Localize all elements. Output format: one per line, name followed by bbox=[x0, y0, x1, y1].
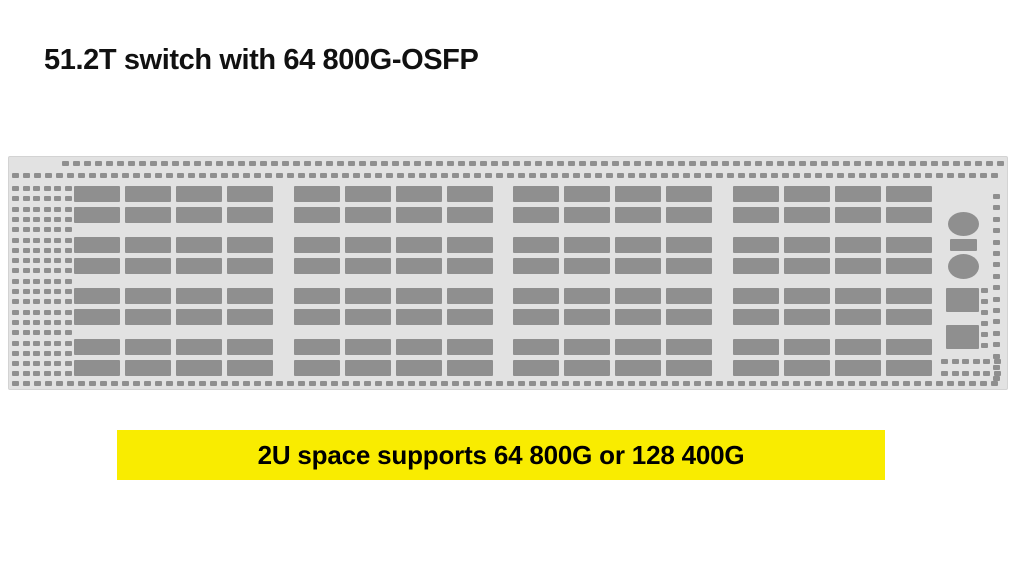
vent-hole bbox=[44, 268, 51, 273]
vent-hole bbox=[172, 161, 179, 166]
vent-hole bbox=[540, 173, 547, 178]
vent-hole bbox=[903, 381, 910, 386]
vent-hole bbox=[837, 173, 844, 178]
vent-hole bbox=[496, 381, 503, 386]
vent-hole bbox=[65, 186, 72, 191]
osfp-port-cage bbox=[294, 339, 340, 355]
vent-hole bbox=[44, 186, 51, 191]
vent-hole bbox=[601, 161, 608, 166]
vent-hole bbox=[33, 258, 40, 263]
vent-hole bbox=[33, 196, 40, 201]
vent-hole bbox=[771, 173, 778, 178]
vent-hole bbox=[381, 161, 388, 166]
vent-hole bbox=[485, 381, 492, 386]
vent-hole bbox=[12, 351, 19, 356]
vent-hole bbox=[463, 381, 470, 386]
vent-hole bbox=[579, 161, 586, 166]
vent-hole bbox=[870, 381, 877, 386]
vent-hole bbox=[507, 381, 514, 386]
vent-hole bbox=[23, 217, 30, 222]
vent-hole bbox=[716, 173, 723, 178]
vent-hole bbox=[265, 173, 272, 178]
callout-banner: 2U space supports 64 800G or 128 400G bbox=[117, 430, 885, 480]
osfp-port-cage bbox=[294, 237, 340, 253]
vent-hole bbox=[155, 381, 162, 386]
osfp-port-cage bbox=[396, 288, 442, 304]
vent-hole bbox=[348, 161, 355, 166]
vent-hole bbox=[12, 268, 19, 273]
vent-hole bbox=[183, 161, 190, 166]
vent-hole bbox=[993, 251, 1000, 256]
osfp-port-cage bbox=[615, 186, 661, 202]
vent-hole bbox=[111, 381, 118, 386]
osfp-port-cage bbox=[396, 360, 442, 376]
osfp-port-cage bbox=[294, 288, 340, 304]
vent-hole bbox=[353, 173, 360, 178]
osfp-port-cage bbox=[835, 186, 881, 202]
vent-hole bbox=[573, 381, 580, 386]
vent-hole bbox=[848, 381, 855, 386]
vent-hole bbox=[84, 161, 91, 166]
osfp-port-cage bbox=[74, 309, 120, 325]
vent-hole bbox=[859, 381, 866, 386]
vent-hole bbox=[65, 289, 72, 294]
osfp-port-cage bbox=[784, 339, 830, 355]
vent-hole bbox=[54, 320, 61, 325]
vent-hole bbox=[993, 342, 1000, 347]
vent-hole bbox=[993, 331, 1000, 336]
vent-hole bbox=[848, 173, 855, 178]
vent-hole bbox=[320, 173, 327, 178]
vent-hole bbox=[403, 161, 410, 166]
osfp-port-cage bbox=[447, 339, 493, 355]
vent-hole bbox=[815, 173, 822, 178]
vent-hole bbox=[986, 161, 993, 166]
mgmt-port-lower bbox=[946, 325, 979, 349]
vent-hole bbox=[529, 381, 536, 386]
osfp-port-cage bbox=[615, 309, 661, 325]
vent-hole bbox=[12, 173, 19, 178]
osfp-port-cage bbox=[886, 360, 932, 376]
osfp-port-cage bbox=[564, 237, 610, 253]
vent-hole bbox=[993, 240, 1000, 245]
vent-hole bbox=[711, 161, 718, 166]
vent-hole bbox=[122, 381, 129, 386]
vent-hole bbox=[936, 173, 943, 178]
osfp-port-cage bbox=[176, 237, 222, 253]
vent-hole bbox=[33, 320, 40, 325]
vent-hole bbox=[925, 173, 932, 178]
vent-hole bbox=[89, 381, 96, 386]
vent-hole bbox=[65, 341, 72, 346]
osfp-port-cage bbox=[835, 309, 881, 325]
vent-hole bbox=[12, 341, 19, 346]
osfp-port-cage bbox=[733, 186, 779, 202]
page-title: 51.2T switch with 64 800G-OSFP bbox=[44, 44, 478, 77]
vent-hole bbox=[964, 161, 971, 166]
vent-hole bbox=[12, 330, 19, 335]
vent-hole bbox=[650, 381, 657, 386]
vent-hole bbox=[993, 285, 1000, 290]
vent-hole bbox=[65, 320, 72, 325]
vent-hole bbox=[973, 359, 980, 364]
osfp-port-cage bbox=[74, 186, 120, 202]
osfp-port-cage bbox=[513, 288, 559, 304]
vent-hole bbox=[843, 161, 850, 166]
vent-hole bbox=[166, 381, 173, 386]
vent-hole bbox=[782, 173, 789, 178]
vent-hole bbox=[12, 238, 19, 243]
vent-hole bbox=[634, 161, 641, 166]
vent-hole bbox=[993, 194, 1000, 199]
osfp-port-cage bbox=[615, 339, 661, 355]
vent-hole bbox=[33, 238, 40, 243]
vent-hole bbox=[12, 289, 19, 294]
osfp-port-cage bbox=[835, 339, 881, 355]
vent-hole bbox=[952, 359, 959, 364]
vent-hole bbox=[33, 371, 40, 376]
vent-hole bbox=[150, 161, 157, 166]
vent-hole bbox=[782, 381, 789, 386]
vent-hole bbox=[144, 381, 151, 386]
vent-hole bbox=[106, 161, 113, 166]
vent-hole bbox=[78, 173, 85, 178]
osfp-port-cage bbox=[125, 207, 171, 223]
osfp-port-cage bbox=[615, 207, 661, 223]
vent-hole bbox=[194, 161, 201, 166]
vent-hole bbox=[12, 381, 19, 386]
vent-hole bbox=[33, 341, 40, 346]
osfp-port-cage bbox=[125, 288, 171, 304]
vent-hole bbox=[993, 217, 1000, 222]
vent-hole bbox=[232, 173, 239, 178]
vent-hole bbox=[370, 161, 377, 166]
vent-hole bbox=[54, 217, 61, 222]
vent-hole bbox=[23, 330, 30, 335]
osfp-port-cage bbox=[733, 288, 779, 304]
vent-hole bbox=[981, 321, 988, 326]
vent-hole bbox=[755, 161, 762, 166]
vent-hole bbox=[44, 227, 51, 232]
osfp-port-cage bbox=[886, 309, 932, 325]
vent-hole bbox=[661, 173, 668, 178]
osfp-port-cage bbox=[176, 309, 222, 325]
mgmt-port-upper bbox=[946, 288, 979, 312]
vent-hole bbox=[981, 343, 988, 348]
vent-hole bbox=[854, 161, 861, 166]
osfp-port-cage bbox=[615, 237, 661, 253]
vent-hole bbox=[733, 161, 740, 166]
vent-hole bbox=[331, 173, 338, 178]
osfp-port-cage bbox=[564, 258, 610, 274]
vent-hole bbox=[65, 299, 72, 304]
vent-hole bbox=[65, 279, 72, 284]
vent-hole bbox=[133, 173, 140, 178]
vent-hole bbox=[837, 381, 844, 386]
vent-hole bbox=[771, 381, 778, 386]
vent-hole bbox=[826, 173, 833, 178]
vent-hole bbox=[496, 173, 503, 178]
vent-hole bbox=[606, 173, 613, 178]
osfp-port-cage bbox=[564, 360, 610, 376]
osfp-port-cage bbox=[227, 258, 273, 274]
vent-hole bbox=[12, 186, 19, 191]
vent-hole bbox=[441, 381, 448, 386]
osfp-port-cage bbox=[176, 360, 222, 376]
vent-hole bbox=[12, 320, 19, 325]
vent-hole bbox=[584, 173, 591, 178]
osfp-port-cage bbox=[564, 186, 610, 202]
vent-hole bbox=[33, 227, 40, 232]
vent-hole bbox=[815, 381, 822, 386]
vent-hole bbox=[524, 161, 531, 166]
vent-hole bbox=[777, 161, 784, 166]
osfp-port-cage bbox=[886, 258, 932, 274]
vent-hole bbox=[859, 173, 866, 178]
vent-hole bbox=[67, 381, 74, 386]
vent-hole bbox=[502, 161, 509, 166]
vent-hole bbox=[271, 161, 278, 166]
osfp-port-cage bbox=[74, 258, 120, 274]
vent-hole bbox=[65, 207, 72, 212]
vent-hole bbox=[54, 186, 61, 191]
vent-hole bbox=[56, 173, 63, 178]
vent-hole bbox=[430, 173, 437, 178]
vent-hole bbox=[33, 279, 40, 284]
vent-hole bbox=[993, 297, 1000, 302]
vent-hole bbox=[661, 381, 668, 386]
vent-hole bbox=[606, 381, 613, 386]
vent-hole bbox=[44, 279, 51, 284]
vent-hole bbox=[518, 381, 525, 386]
osfp-port-cage bbox=[345, 186, 391, 202]
vent-hole bbox=[645, 161, 652, 166]
vent-hole bbox=[909, 161, 916, 166]
vent-hole bbox=[12, 371, 19, 376]
osfp-port-cage bbox=[125, 186, 171, 202]
vent-hole bbox=[826, 381, 833, 386]
vent-hole bbox=[166, 173, 173, 178]
vent-hole bbox=[260, 161, 267, 166]
vent-hole bbox=[44, 361, 51, 366]
osfp-port-cage bbox=[886, 339, 932, 355]
vent-hole bbox=[287, 173, 294, 178]
vent-hole bbox=[364, 173, 371, 178]
vent-hole bbox=[485, 173, 492, 178]
vent-hole bbox=[12, 361, 19, 366]
osfp-port-cage bbox=[447, 309, 493, 325]
osfp-port-cage bbox=[733, 360, 779, 376]
vent-hole bbox=[876, 161, 883, 166]
vent-hole bbox=[788, 161, 795, 166]
vent-hole bbox=[12, 258, 19, 263]
vent-hole bbox=[243, 173, 250, 178]
vent-hole bbox=[54, 299, 61, 304]
vent-hole bbox=[793, 173, 800, 178]
vent-hole bbox=[65, 227, 72, 232]
vent-hole bbox=[518, 173, 525, 178]
osfp-port-cage bbox=[513, 339, 559, 355]
round-connector-top bbox=[948, 212, 979, 236]
vent-hole bbox=[738, 381, 745, 386]
vent-hole bbox=[33, 207, 40, 212]
osfp-port-cage bbox=[615, 360, 661, 376]
vent-hole bbox=[320, 381, 327, 386]
osfp-port-cage bbox=[666, 309, 712, 325]
vent-hole bbox=[54, 268, 61, 273]
vent-hole bbox=[920, 161, 927, 166]
osfp-port-cage bbox=[176, 288, 222, 304]
osfp-port-cage bbox=[835, 207, 881, 223]
osfp-port-cage bbox=[396, 237, 442, 253]
vent-hole bbox=[23, 196, 30, 201]
vent-hole bbox=[925, 381, 932, 386]
osfp-port-cage bbox=[345, 207, 391, 223]
vent-hole bbox=[962, 359, 969, 364]
vent-hole bbox=[744, 161, 751, 166]
vent-hole bbox=[958, 173, 965, 178]
osfp-port-cage bbox=[227, 207, 273, 223]
vent-hole bbox=[513, 161, 520, 166]
vent-hole bbox=[254, 381, 261, 386]
vent-hole bbox=[408, 381, 415, 386]
vent-hole bbox=[44, 341, 51, 346]
vent-hole bbox=[221, 381, 228, 386]
vent-hole bbox=[705, 381, 712, 386]
vent-hole bbox=[44, 217, 51, 222]
vent-hole bbox=[716, 381, 723, 386]
vent-hole bbox=[727, 381, 734, 386]
vent-hole bbox=[694, 381, 701, 386]
vent-hole bbox=[342, 381, 349, 386]
vent-hole bbox=[161, 161, 168, 166]
vent-hole bbox=[54, 351, 61, 356]
vent-hole bbox=[23, 207, 30, 212]
vent-hole bbox=[65, 371, 72, 376]
vent-hole bbox=[23, 279, 30, 284]
vent-hole bbox=[34, 381, 41, 386]
vent-hole bbox=[617, 173, 624, 178]
osfp-port-cage bbox=[886, 186, 932, 202]
vent-hole bbox=[73, 161, 80, 166]
vent-hole bbox=[67, 173, 74, 178]
osfp-port-cage bbox=[447, 258, 493, 274]
vent-hole bbox=[65, 196, 72, 201]
osfp-port-cage bbox=[835, 288, 881, 304]
osfp-port-cage bbox=[784, 237, 830, 253]
vent-hole bbox=[397, 381, 404, 386]
osfp-port-cage bbox=[784, 207, 830, 223]
osfp-port-cage bbox=[447, 186, 493, 202]
vent-hole bbox=[23, 351, 30, 356]
vent-hole bbox=[793, 381, 800, 386]
osfp-port-cage bbox=[125, 258, 171, 274]
vent-hole bbox=[65, 258, 72, 263]
vent-hole bbox=[441, 173, 448, 178]
vent-hole bbox=[700, 161, 707, 166]
vent-hole bbox=[276, 381, 283, 386]
vent-hole bbox=[44, 371, 51, 376]
vent-hole bbox=[474, 381, 481, 386]
osfp-port-cage bbox=[666, 186, 712, 202]
osfp-port-cage bbox=[835, 258, 881, 274]
vent-hole bbox=[568, 161, 575, 166]
vent-hole bbox=[33, 299, 40, 304]
vent-hole bbox=[23, 341, 30, 346]
vent-hole bbox=[898, 161, 905, 166]
vent-hole bbox=[65, 217, 72, 222]
vent-hole bbox=[623, 161, 630, 166]
vent-hole bbox=[44, 196, 51, 201]
vent-hole bbox=[33, 289, 40, 294]
osfp-port-cage bbox=[666, 237, 712, 253]
vent-hole bbox=[722, 161, 729, 166]
vent-hole bbox=[54, 238, 61, 243]
vent-hole bbox=[304, 161, 311, 166]
vent-hole bbox=[23, 299, 30, 304]
osfp-port-cage bbox=[784, 309, 830, 325]
osfp-port-cage bbox=[294, 360, 340, 376]
vent-hole bbox=[760, 381, 767, 386]
vent-hole bbox=[359, 161, 366, 166]
osfp-port-cage bbox=[564, 288, 610, 304]
vent-hole bbox=[78, 381, 85, 386]
osfp-port-cage bbox=[615, 258, 661, 274]
osfp-port-cage bbox=[733, 237, 779, 253]
osfp-port-cage bbox=[513, 207, 559, 223]
osfp-port-cage bbox=[396, 339, 442, 355]
vent-hole bbox=[210, 173, 217, 178]
vent-hole bbox=[529, 173, 536, 178]
vent-hole bbox=[249, 161, 256, 166]
vent-hole bbox=[177, 173, 184, 178]
osfp-port-cage bbox=[447, 237, 493, 253]
vent-hole bbox=[981, 332, 988, 337]
vent-hole bbox=[111, 173, 118, 178]
vent-hole bbox=[639, 173, 646, 178]
vent-hole bbox=[672, 381, 679, 386]
round-connector-bottom bbox=[948, 254, 979, 279]
vent-hole bbox=[667, 161, 674, 166]
vent-hole bbox=[969, 173, 976, 178]
osfp-port-cage bbox=[784, 288, 830, 304]
vent-hole bbox=[650, 173, 657, 178]
vent-hole bbox=[33, 330, 40, 335]
vent-hole bbox=[892, 173, 899, 178]
osfp-port-cage bbox=[125, 309, 171, 325]
vent-hole bbox=[23, 268, 30, 273]
vent-hole bbox=[254, 173, 261, 178]
vent-hole bbox=[65, 351, 72, 356]
vent-hole bbox=[144, 173, 151, 178]
vent-hole bbox=[23, 289, 30, 294]
vent-hole bbox=[705, 173, 712, 178]
vent-hole bbox=[419, 381, 426, 386]
vent-hole bbox=[947, 173, 954, 178]
vent-hole bbox=[265, 381, 272, 386]
osfp-port-cage bbox=[447, 207, 493, 223]
osfp-port-cage bbox=[513, 258, 559, 274]
vent-hole bbox=[683, 173, 690, 178]
vent-hole bbox=[23, 258, 30, 263]
vent-hole bbox=[188, 381, 195, 386]
vent-hole bbox=[991, 381, 998, 386]
osfp-port-cage bbox=[835, 360, 881, 376]
osfp-port-cage bbox=[513, 186, 559, 202]
vent-hole bbox=[573, 173, 580, 178]
vent-hole bbox=[799, 161, 806, 166]
osfp-port-cage bbox=[227, 309, 273, 325]
